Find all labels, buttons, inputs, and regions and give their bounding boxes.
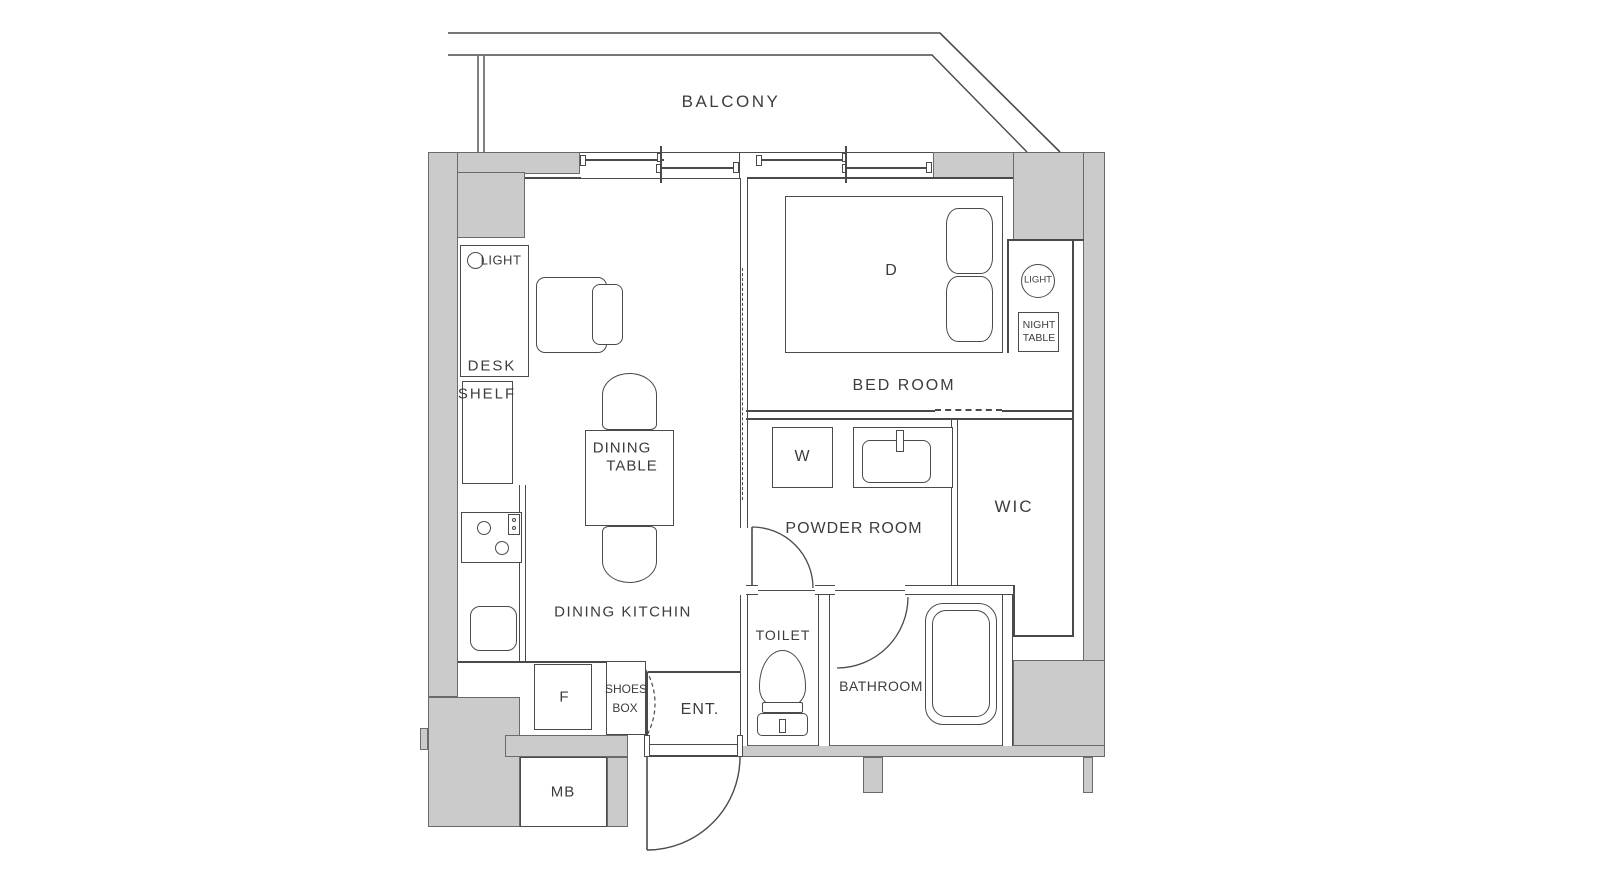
dining-kitchen-label: DINING KITCHIN — [554, 603, 692, 620]
entrance-threshold — [648, 755, 741, 757]
bedroom-label: BED ROOM — [852, 377, 955, 395]
wall-column-top-left — [457, 172, 525, 238]
wic-sliding-door-dashed — [935, 409, 1002, 411]
armchair-back — [592, 284, 623, 345]
night-table-label-line1: NIGHT — [1023, 319, 1056, 331]
stove-burner — [477, 521, 491, 535]
window-left-jamb — [580, 155, 586, 166]
dining-chair-top — [602, 373, 657, 430]
entrance-door-arc — [647, 757, 740, 850]
bed-pillow — [946, 208, 993, 274]
dining-chair-bottom — [602, 526, 657, 583]
bed-size-label: D — [885, 262, 897, 280]
toilet-seat-hinge — [762, 702, 803, 713]
wall-right-tip — [1083, 757, 1093, 793]
wic-label: WIC — [994, 497, 1033, 517]
refrigerator-label: F — [559, 688, 568, 705]
window-left-center-tick — [660, 146, 662, 183]
entrance-door-jamb — [737, 735, 743, 757]
bed-pillow — [946, 276, 993, 342]
window-right-pane — [845, 167, 931, 169]
niche-top-edge — [1007, 239, 1084, 241]
wic-step-edge — [1013, 585, 1015, 637]
wall-left — [428, 152, 458, 697]
dk-top-edge — [525, 177, 581, 179]
entrance-door-head — [648, 744, 741, 745]
bedroom-light-label: LIGHT — [1024, 276, 1052, 287]
wall-bottom-band — [742, 745, 1105, 757]
wall-toilet-west — [740, 595, 748, 746]
desk-label: DESK — [468, 357, 517, 374]
night-table-label-line2: TABLE — [1023, 332, 1055, 344]
window-right-jamb — [926, 162, 932, 173]
washer-label: W — [794, 448, 809, 466]
stove-control-dot — [512, 518, 516, 522]
kitchen-sink — [470, 606, 517, 651]
window-right-jamb — [756, 155, 762, 166]
balcony-label: BALCONY — [682, 92, 781, 112]
wall-mb-top-band — [505, 735, 628, 757]
window-left-pane — [584, 159, 664, 161]
bathroom-door-arc — [837, 597, 908, 668]
dining-table-label-line1: DINING — [593, 439, 652, 456]
bedroom-south-wall — [746, 418, 1072, 420]
stove-burner — [495, 541, 509, 555]
entrance-label: ENT. — [681, 701, 720, 719]
entrance-step-edge — [648, 671, 741, 673]
wall-mb-right-strip — [607, 757, 628, 827]
wic-bottom-edge — [1013, 635, 1073, 637]
powder-room-label: POWDER ROOM — [785, 520, 922, 538]
wall-powder-south — [815, 585, 835, 595]
stove-control-dot — [512, 526, 516, 530]
shoes-box — [606, 661, 646, 735]
floor-plan: BALCONY LIGHT DESK SHELF DINING TABLE DI… — [0, 0, 1600, 880]
window-right-pane — [760, 159, 845, 161]
dining-table-label-line2: TABLE — [606, 457, 657, 474]
wall-bottom-left-block — [428, 697, 520, 827]
meter-box-label: MB — [551, 783, 576, 800]
wall-bathroom-east — [1002, 595, 1013, 746]
sliding-door-dashed-line — [742, 268, 743, 500]
bedroom-south-wall — [746, 410, 935, 412]
bathtub-inner — [932, 610, 990, 717]
niche-left-edge — [1007, 240, 1009, 353]
bedroom-top-edge — [747, 177, 1013, 179]
vanity-faucet — [896, 430, 904, 452]
east-inner-face — [1072, 240, 1074, 637]
wall-powder-south — [746, 585, 758, 595]
wall-powder-south — [905, 585, 1013, 595]
wall-bottom-pier — [863, 757, 883, 793]
desk-light-label: LIGHT — [481, 254, 522, 269]
toilet-label: TOILET — [756, 627, 811, 643]
toilet-flush-handle — [779, 719, 786, 733]
shelf-label: SHELF — [458, 385, 516, 402]
toilet-door-threshold — [758, 590, 815, 591]
wall-left-tab — [420, 728, 428, 750]
wall-bottom-right-block — [1013, 660, 1105, 757]
shoes-box-label-line2: BOX — [612, 702, 637, 716]
bedroom-south-wall — [1002, 410, 1072, 412]
bathroom-door-threshold — [835, 590, 905, 591]
bathroom-label: BATHROOM — [839, 678, 923, 694]
shoes-box-label-line1: SHOES — [605, 683, 647, 697]
window-left-pane — [659, 167, 738, 169]
wall-toilet-bathroom — [818, 595, 830, 746]
entrance-door-jamb — [644, 735, 650, 757]
window-pier — [739, 152, 757, 179]
